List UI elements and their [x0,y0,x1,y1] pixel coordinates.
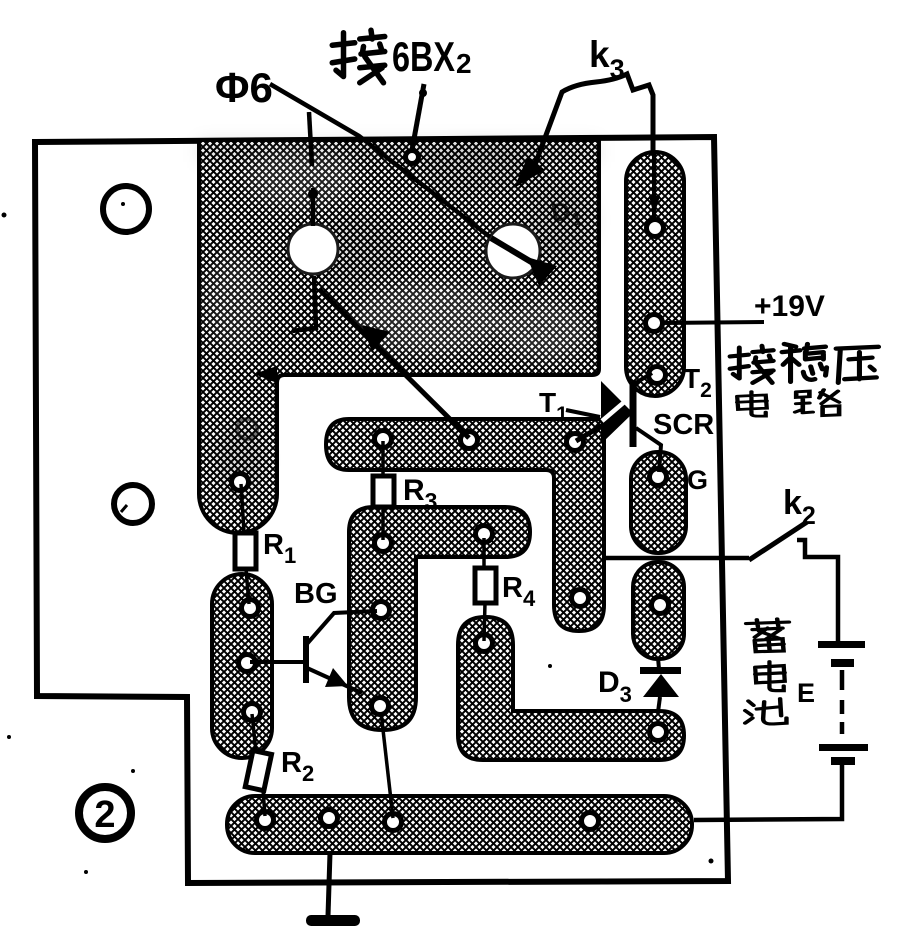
svg-text:BG: BG [294,578,338,610]
svg-text:2: 2 [456,48,472,79]
svg-text:E: E [797,678,815,708]
svg-text:6BX: 6BX [392,33,455,80]
svg-text:G: G [687,465,708,495]
svg-text:+19V: +19V [754,290,825,323]
svg-text:SCR: SCR [653,409,714,441]
svg-text:Φ6: Φ6 [215,64,273,111]
svg-text:2: 2 [94,794,115,836]
